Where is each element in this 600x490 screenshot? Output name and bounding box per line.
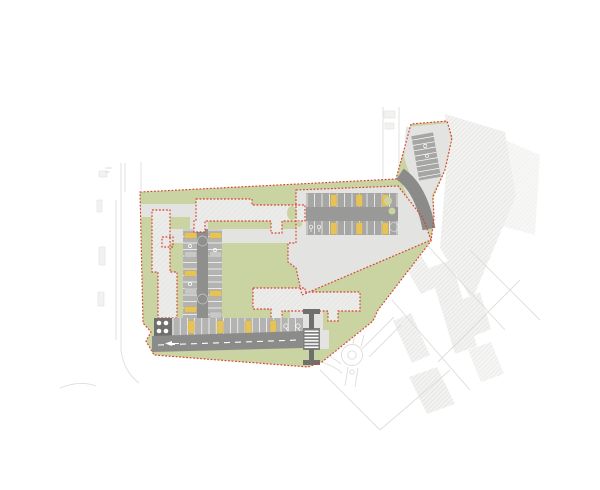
crosswalk-stripe — [305, 331, 319, 333]
waste-bins — [154, 318, 172, 336]
parked-car — [245, 321, 252, 334]
context-vehicle — [384, 111, 395, 118]
parked-car — [356, 195, 363, 207]
crosswalk-stripe — [305, 340, 319, 342]
crosswalk-stripe — [305, 343, 319, 345]
parked-car — [210, 233, 222, 239]
parked-car — [331, 195, 338, 207]
context-structure — [98, 292, 104, 306]
central-parking-strip — [183, 229, 222, 322]
parked-car — [185, 233, 197, 239]
parked-car — [210, 252, 222, 258]
crosswalk-stripe — [305, 334, 319, 336]
parked-car — [382, 223, 389, 235]
site-plan-page — [0, 0, 600, 490]
parked-car — [185, 271, 197, 277]
context-structure — [97, 200, 102, 212]
central-aisle — [197, 229, 208, 322]
context-vehicle — [385, 123, 394, 129]
context-north-road — [383, 107, 399, 178]
parked-car — [210, 312, 222, 318]
parked-car — [356, 223, 363, 235]
site-plan-canvas — [0, 0, 600, 490]
parked-car — [270, 321, 277, 334]
big-lot-aisle — [306, 207, 398, 221]
shrub — [384, 197, 392, 205]
parked-car — [185, 252, 197, 258]
context-west-street — [60, 162, 141, 388]
parked-car — [331, 223, 338, 235]
shrub — [296, 221, 302, 227]
shrub — [389, 208, 396, 215]
parked-car — [185, 288, 197, 294]
parked-car — [185, 307, 197, 313]
road-stub-east — [320, 330, 329, 349]
parked-car — [217, 321, 224, 334]
parked-car — [188, 321, 195, 334]
crosswalk-stripe — [305, 347, 319, 349]
crosswalk-stripe — [305, 337, 319, 339]
context-block — [409, 367, 455, 414]
context-block — [468, 342, 504, 382]
context-block — [498, 140, 540, 235]
context-structure — [99, 247, 105, 265]
parked-car — [210, 291, 222, 297]
